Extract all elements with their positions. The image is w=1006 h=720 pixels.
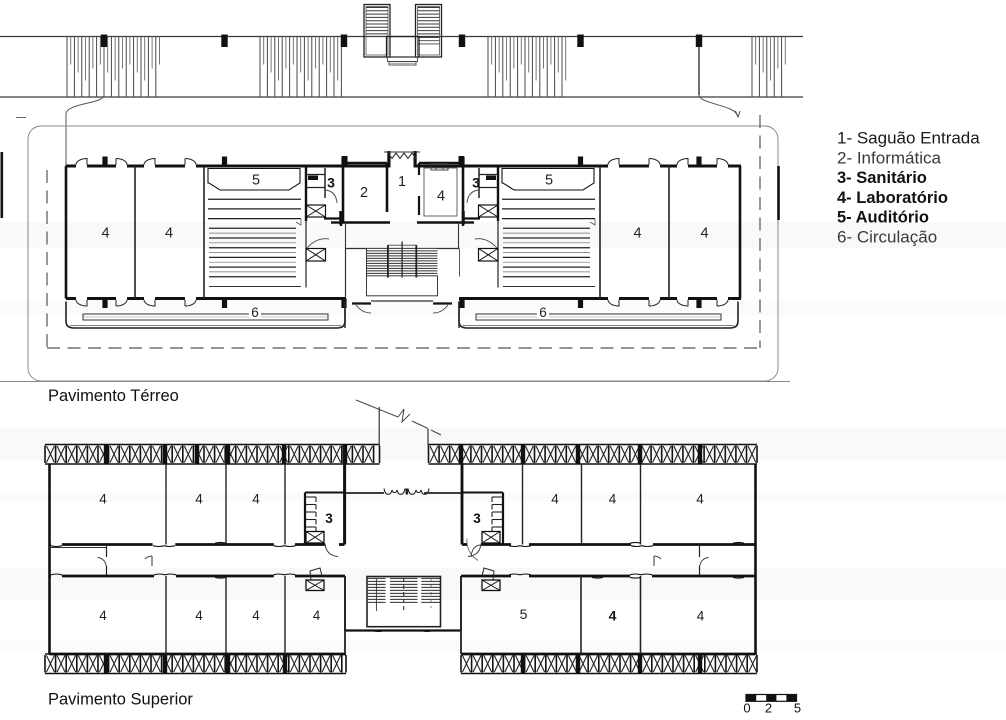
- svg-text:4: 4: [609, 608, 617, 624]
- svg-text:3: 3: [327, 175, 335, 191]
- svg-text:1: 1: [398, 174, 406, 190]
- svg-text:4: 4: [101, 226, 109, 242]
- svg-text:4: 4: [165, 226, 173, 242]
- svg-text:4: 4: [696, 492, 704, 507]
- svg-text:4: 4: [697, 609, 705, 624]
- svg-text:Pavimento Térreo: Pavimento Térreo: [48, 387, 179, 405]
- svg-text:3- Sanitário: 3- Sanitário: [837, 169, 927, 187]
- svg-text:4: 4: [313, 608, 321, 623]
- svg-text:2: 2: [765, 701, 772, 716]
- svg-text:6: 6: [251, 305, 259, 320]
- svg-text:4: 4: [633, 226, 641, 242]
- svg-text:4: 4: [195, 608, 203, 623]
- svg-text:5: 5: [520, 606, 528, 622]
- svg-text:6: 6: [539, 305, 547, 320]
- svg-text:4: 4: [195, 492, 203, 507]
- svg-text:3: 3: [472, 175, 480, 191]
- svg-text:4: 4: [437, 189, 445, 205]
- svg-text:5: 5: [545, 173, 553, 189]
- svg-text:Pavimento Superior: Pavimento Superior: [48, 691, 193, 709]
- svg-text:5: 5: [252, 173, 260, 189]
- svg-text:4: 4: [700, 226, 708, 242]
- svg-text:5- Auditório: 5- Auditório: [837, 209, 929, 227]
- svg-text:6- Circulação: 6- Circulação: [837, 228, 937, 247]
- svg-text:4: 4: [99, 608, 107, 623]
- svg-text:4: 4: [99, 492, 107, 507]
- svg-text:4: 4: [252, 608, 260, 623]
- svg-text:5: 5: [794, 701, 801, 716]
- svg-text:0: 0: [743, 701, 750, 716]
- svg-text:2- Informática: 2- Informática: [837, 148, 941, 167]
- svg-text:4- Laboratório: 4- Laboratório: [837, 189, 948, 207]
- svg-text:4: 4: [609, 492, 617, 507]
- svg-text:1- Saguão Entrada: 1- Saguão Entrada: [837, 129, 980, 148]
- svg-text:4: 4: [551, 492, 559, 507]
- svg-text:2: 2: [360, 185, 368, 201]
- svg-text:3: 3: [473, 511, 481, 526]
- svg-text:4: 4: [252, 492, 260, 507]
- svg-text:3: 3: [325, 511, 333, 526]
